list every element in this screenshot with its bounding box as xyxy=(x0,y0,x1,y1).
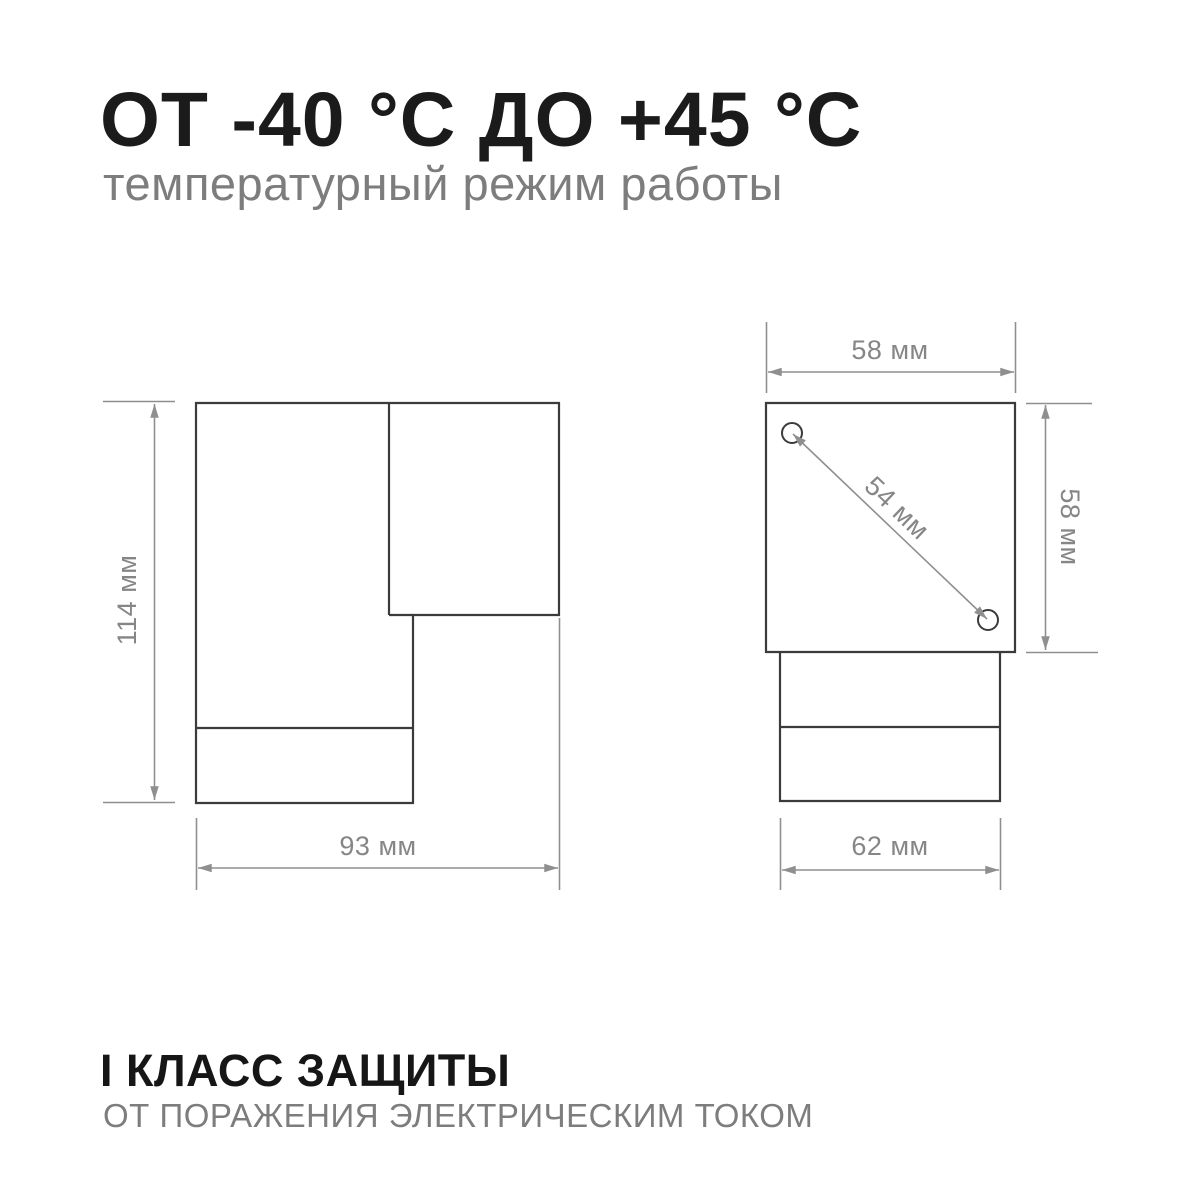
side-height-dim-label: 114 мм xyxy=(112,555,142,646)
side-view-outline xyxy=(196,403,559,803)
side-view-inner-lines xyxy=(196,403,413,728)
footer-subtitle: ОТ ПОРАЖЕНИЯ ЭЛЕКТРИЧЕСКИМ ТОКОМ xyxy=(103,1099,813,1132)
dimension-drawing-svg: 114 мм 93 мм 54 мм 58 мм xyxy=(0,0,1200,1200)
top-view-group: 54 мм 58 мм 58 мм 62 мм xyxy=(766,322,1098,890)
top-view-base xyxy=(780,652,1000,801)
infographic-canvas: ОТ -40 °С ДО +45 °С температурный режим … xyxy=(0,0,1200,1200)
side-width-dim-label: 93 мм xyxy=(339,831,416,861)
footer-title: I КЛАСС ЗАЩИТЫ xyxy=(100,1048,510,1093)
diagonal-dim-line xyxy=(793,434,987,619)
side-view-group: 114 мм 93 мм xyxy=(103,402,560,891)
top-height-dim-label: 58 мм xyxy=(1055,488,1085,565)
top-width-dim-label: 58 мм xyxy=(851,335,928,365)
base-width-dim-label: 62 мм xyxy=(851,831,928,861)
